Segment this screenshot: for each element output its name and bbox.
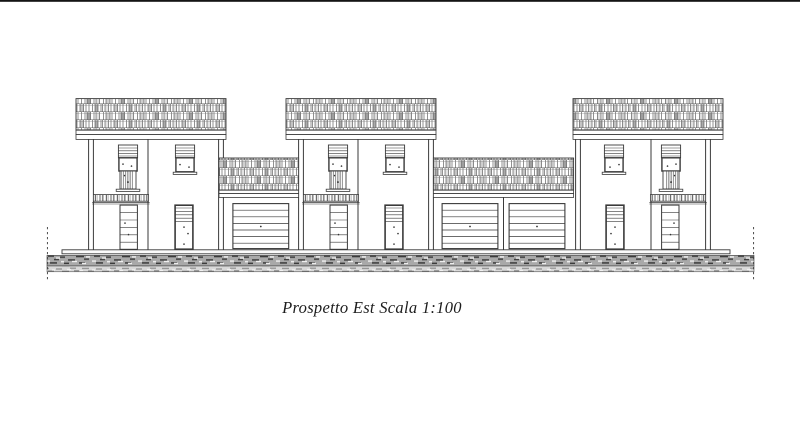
garage-door [233,204,289,249]
garage-door [509,204,565,249]
garage-door [442,204,498,249]
house-1 [76,99,226,250]
tiled-roof-band [219,158,299,190]
roof-fascia [219,190,299,193]
gravel-band-dark [47,255,754,266]
garage-block-1 [219,158,299,249]
drawing-sheet: Prospetto Est Scala 1:100 [0,0,800,433]
roof-fascia [433,190,573,193]
house-2 [286,99,436,250]
top-border-line [0,0,800,2]
sidewalk-slab [62,250,730,254]
drawing-caption: Prospetto Est Scala 1:100 [281,298,462,317]
house-3-mirrored [573,99,723,250]
garage-block-2 [433,158,573,250]
ground-pavement-band [47,250,754,272]
gravel-band-light [47,266,754,272]
roof-fascia [433,194,573,198]
roof-fascia [219,194,299,198]
tiled-roof-band [433,158,573,190]
elevation-drawing: Prospetto Est Scala 1:100 [0,0,800,433]
